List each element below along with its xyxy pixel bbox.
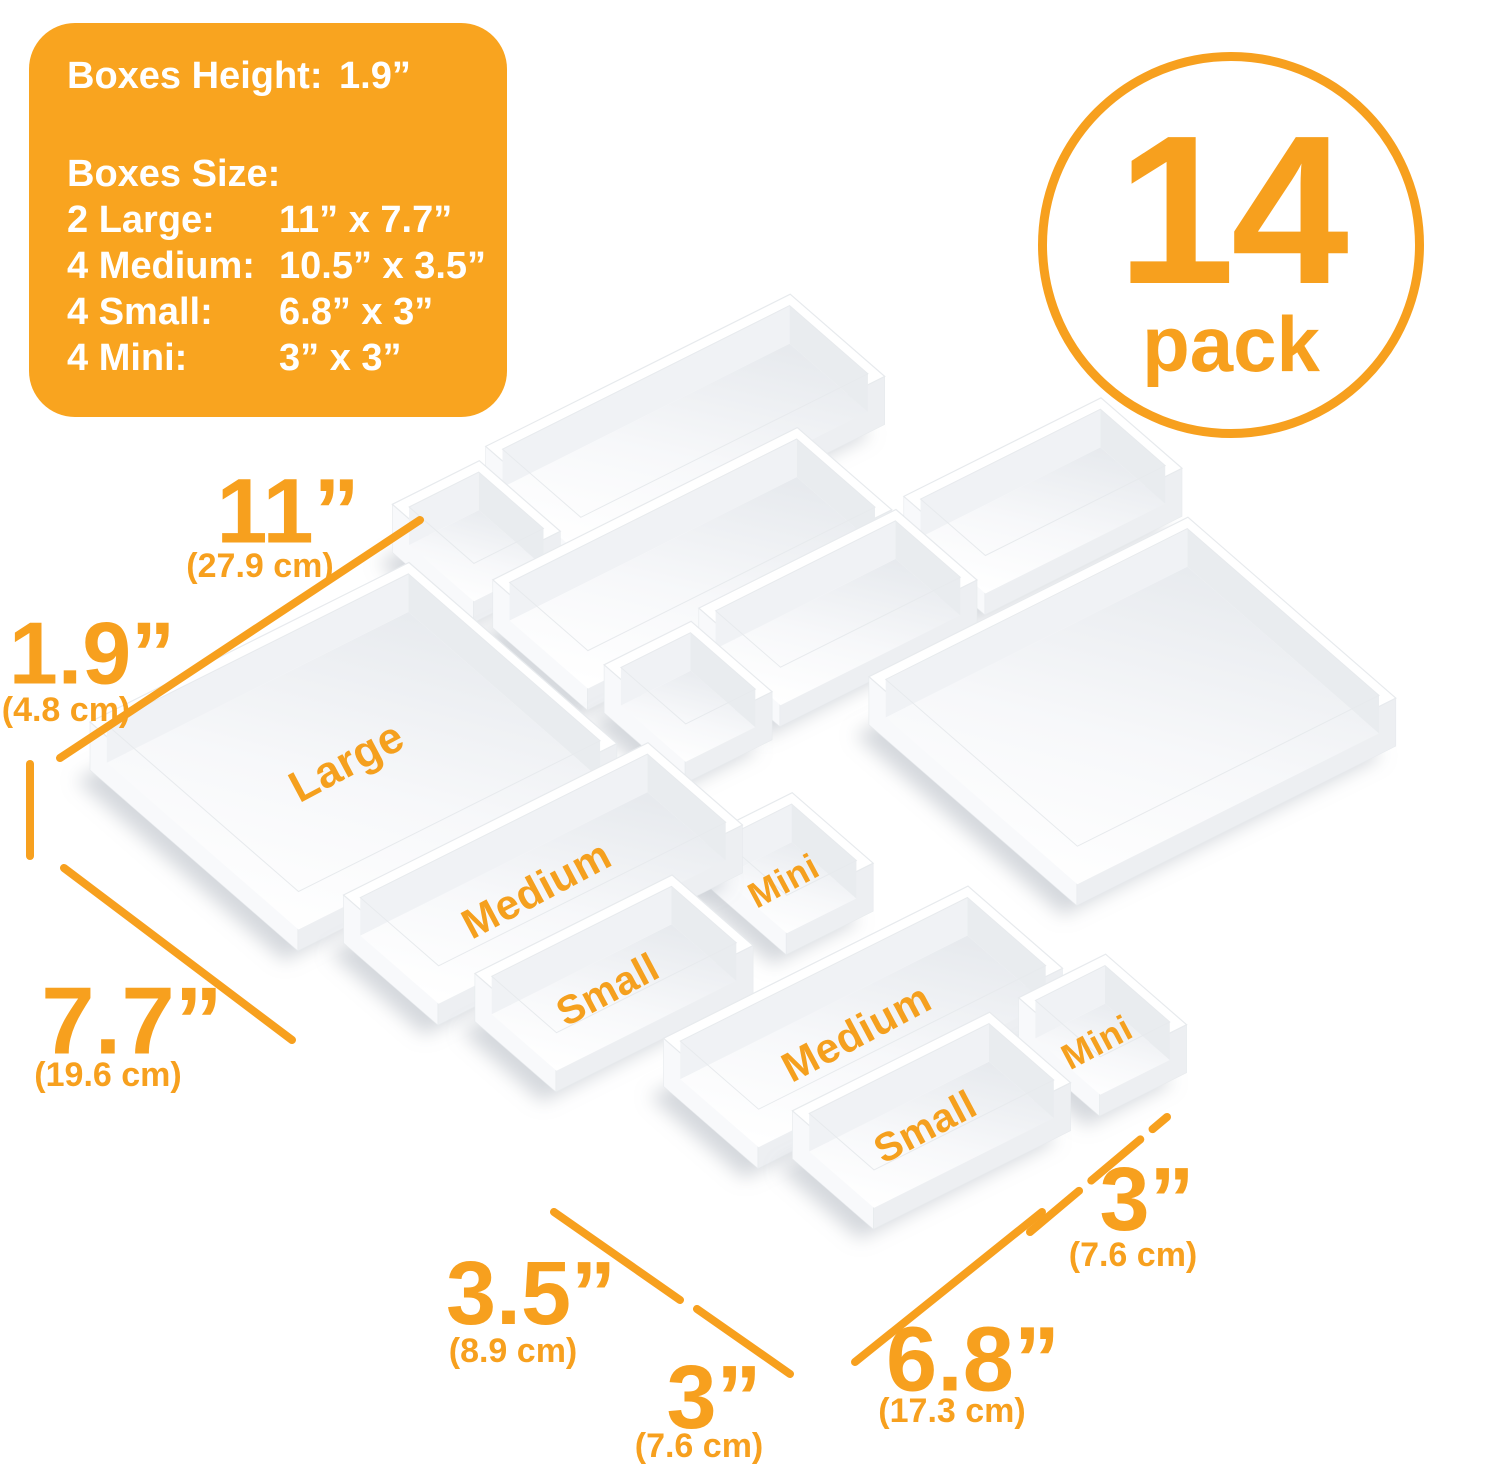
dim-6-8-cm: (17.3 cm) <box>878 1392 1025 1430</box>
dim-3-5-value: 3.5” <box>446 1244 616 1344</box>
dim-1-9-value: 1.9” <box>9 603 175 702</box>
size-row-large-value: 11” x 7.7” <box>279 197 481 243</box>
size-row-large-label: 2 Large: <box>67 197 279 243</box>
size-row-large: 2 Large: 11” x 7.7” <box>67 197 481 243</box>
size-row-medium: 4 Medium: 10.5” x 3.5” <box>67 243 481 289</box>
size-row-mini: 4 Mini: 3” x 3” <box>67 335 481 381</box>
pack-count-word: pack <box>1142 305 1320 383</box>
dim-3-bottom: 3”(7.6 cm) <box>635 1309 790 1465</box>
dim-3-right-cm: (7.6 cm) <box>1069 1236 1198 1274</box>
pack-count-badge: 14 pack <box>1038 52 1424 438</box>
dim-11-cm: (27.9 cm) <box>186 547 333 585</box>
info-panel: Boxes Height: 1.9” Boxes Size: 2 Large: … <box>29 23 507 417</box>
dim-3-5-cm: (8.9 cm) <box>449 1332 578 1370</box>
size-row-medium-label: 4 Medium: <box>67 243 279 289</box>
boxes-height-label: Boxes Height: <box>67 53 339 99</box>
pack-count-number: 14 <box>1117 117 1345 304</box>
dim-3-5: 3.5”(8.9 cm) <box>446 1212 680 1370</box>
dim-7-7-cm: (19.6 cm) <box>34 1056 181 1094</box>
size-row-small: 4 Small: 6.8” x 3” <box>67 289 481 335</box>
dim-3-right-value: 3” <box>1099 1150 1194 1250</box>
dim-1-9-cm: (4.8 cm) <box>2 691 131 729</box>
size-row-mini-value: 3” x 3” <box>279 335 481 381</box>
size-row-small-value: 6.8” x 3” <box>279 289 481 335</box>
boxes-height-value: 1.9” <box>339 53 481 99</box>
size-row-mini-label: 4 Mini: <box>67 335 279 381</box>
panel-spacer <box>67 99 481 151</box>
boxes-height-row: Boxes Height: 1.9” <box>67 53 481 99</box>
size-row-small-label: 4 Small: <box>67 289 279 335</box>
product-infographic: LargeMiniMediumSmallMediumMiniSmall11”(2… <box>0 0 1500 1467</box>
boxes-size-label: Boxes Size: <box>67 151 481 197</box>
dim-3-bottom-cm: (7.6 cm) <box>635 1427 764 1465</box>
size-row-medium-value: 10.5” x 3.5” <box>279 243 486 289</box>
dim-6-8: 6.8”(17.3 cm) <box>855 1212 1060 1430</box>
